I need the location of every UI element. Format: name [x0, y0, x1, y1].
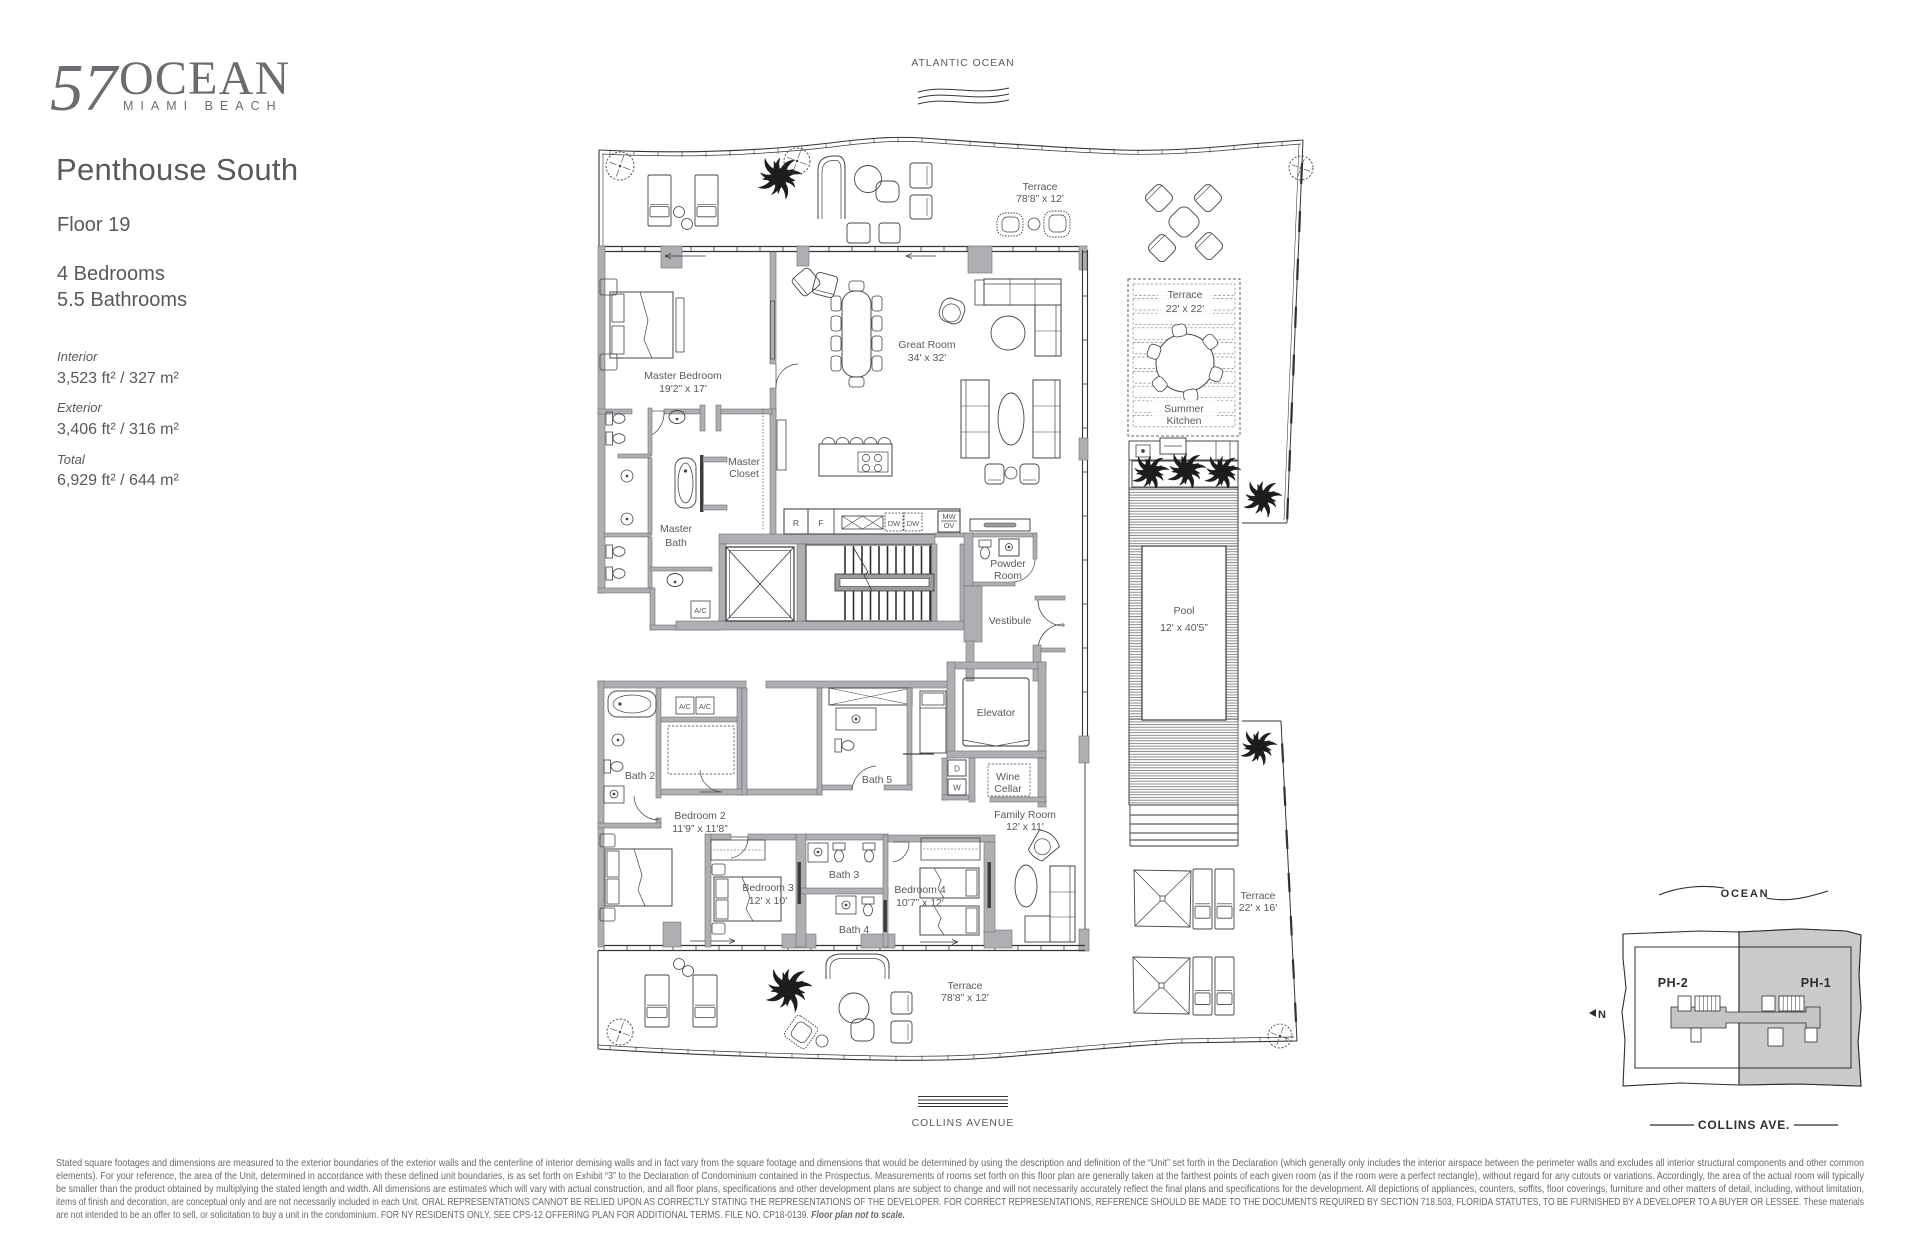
svg-text:MIAMI BEACH: MIAMI BEACH [123, 99, 283, 113]
svg-text:PH-2: PH-2 [1658, 976, 1688, 990]
svg-text:Cellar: Cellar [994, 783, 1022, 795]
svg-text:12' x 10': 12' x 10' [749, 895, 787, 907]
svg-text:57: 57 [50, 51, 120, 125]
svg-text:78'8” x 12': 78'8” x 12' [1016, 193, 1064, 205]
svg-text:Master Bedroom: Master Bedroom [644, 370, 722, 382]
svg-text:11'9” x 11'8”: 11'9” x 11'8” [672, 823, 728, 835]
svg-text:Master: Master [660, 523, 693, 535]
svg-text:Powder: Powder [990, 558, 1026, 570]
svg-text:Summer: Summer [1164, 403, 1204, 415]
svg-text:F: F [818, 518, 823, 528]
svg-text:Total: Total [57, 452, 86, 467]
svg-text:Master: Master [728, 456, 761, 468]
svg-text:Bath 3: Bath 3 [829, 869, 860, 881]
svg-text:19'2” x 17': 19'2” x 17' [659, 383, 707, 395]
svg-text:DW: DW [907, 519, 920, 528]
svg-text:22' x 16': 22' x 16' [1239, 902, 1277, 914]
svg-text:ATLANTIC OCEAN: ATLANTIC OCEAN [911, 58, 1014, 69]
svg-text:Great Room: Great Room [898, 339, 955, 351]
svg-text:Closet: Closet [729, 468, 759, 480]
svg-text:be smaller than the product ob: be smaller than the product obtained by … [56, 1184, 1864, 1195]
svg-text:Vestibule: Vestibule [989, 615, 1032, 627]
svg-text:W: W [953, 784, 961, 793]
svg-text:A/C: A/C [694, 606, 707, 615]
svg-text:Bath 2: Bath 2 [625, 770, 656, 782]
svg-text:Bath 4: Bath 4 [839, 924, 870, 936]
svg-text:22' x 22': 22' x 22' [1166, 303, 1204, 315]
svg-text:Pool: Pool [1173, 605, 1194, 617]
svg-text:34' x 32': 34' x 32' [908, 352, 946, 364]
svg-text:Stated square footages and dim: Stated square footages and dimensions ar… [56, 1158, 1864, 1169]
svg-text:Bedroom 3: Bedroom 3 [742, 882, 794, 894]
svg-text:12' x 40'5”: 12' x 40'5” [1160, 622, 1208, 634]
svg-text:Kitchen: Kitchen [1166, 415, 1201, 427]
svg-text:R: R [793, 518, 799, 528]
svg-text:Floor 19: Floor 19 [57, 214, 130, 236]
svg-text:Elevator: Elevator [977, 707, 1016, 719]
svg-text:DW: DW [888, 519, 901, 528]
svg-text:Terrace: Terrace [947, 980, 982, 992]
svg-text:OV: OV [944, 521, 955, 530]
svg-text:Bedroom 4: Bedroom 4 [894, 884, 946, 896]
svg-text:A/C: A/C [699, 702, 711, 711]
svg-text:Penthouse South: Penthouse South [56, 152, 298, 187]
svg-text:6,929 ft² / 644 m²: 6,929 ft² / 644 m² [57, 472, 180, 489]
svg-text:items of finish and decoration: items of finish and decoration, are conc… [56, 1197, 1864, 1208]
svg-text:Bath: Bath [665, 537, 687, 549]
svg-text:OCEAN: OCEAN [1721, 888, 1770, 900]
svg-text:Terrace: Terrace [1022, 181, 1057, 193]
svg-text:3,406 ft² / 316 m²: 3,406 ft² / 316 m² [57, 421, 180, 438]
svg-text:4 Bedrooms: 4 Bedrooms [57, 263, 165, 285]
svg-text:Room: Room [994, 570, 1022, 582]
svg-text:COLLINS AVENUE: COLLINS AVENUE [912, 1118, 1015, 1129]
svg-text:Family Room: Family Room [994, 809, 1056, 821]
svg-text:3,523 ft² / 327 m²: 3,523 ft² / 327 m² [57, 370, 180, 387]
svg-text:Bedroom 2: Bedroom 2 [674, 810, 726, 822]
svg-text:MW: MW [942, 512, 956, 521]
svg-text:are not intended to be an offe: are not intended to be an offer to sell,… [56, 1210, 905, 1221]
svg-text:5.5 Bathrooms: 5.5 Bathrooms [57, 289, 187, 311]
svg-text:Terrace: Terrace [1167, 289, 1202, 301]
svg-text:Exterior: Exterior [57, 400, 102, 415]
svg-text:78'8” x 12': 78'8” x 12' [941, 992, 989, 1004]
svg-text:A/C: A/C [679, 702, 691, 711]
svg-text:COLLINS AVE.: COLLINS AVE. [1698, 1118, 1790, 1132]
svg-text:Wine: Wine [996, 771, 1020, 783]
svg-text:Bath 5: Bath 5 [862, 774, 893, 786]
svg-text:OCEAN: OCEAN [119, 52, 290, 105]
svg-text:elements). For your reference,: elements). For your reference, the area … [56, 1171, 1865, 1182]
svg-text:10'7” x 12': 10'7” x 12' [896, 897, 944, 909]
svg-text:12' x 11': 12' x 11' [1006, 821, 1044, 833]
svg-text:N: N [1598, 1009, 1606, 1021]
svg-text:D: D [954, 765, 960, 774]
svg-text:Interior: Interior [57, 349, 98, 364]
svg-text:PH-1: PH-1 [1801, 976, 1831, 990]
svg-text:Terrace: Terrace [1240, 890, 1275, 902]
